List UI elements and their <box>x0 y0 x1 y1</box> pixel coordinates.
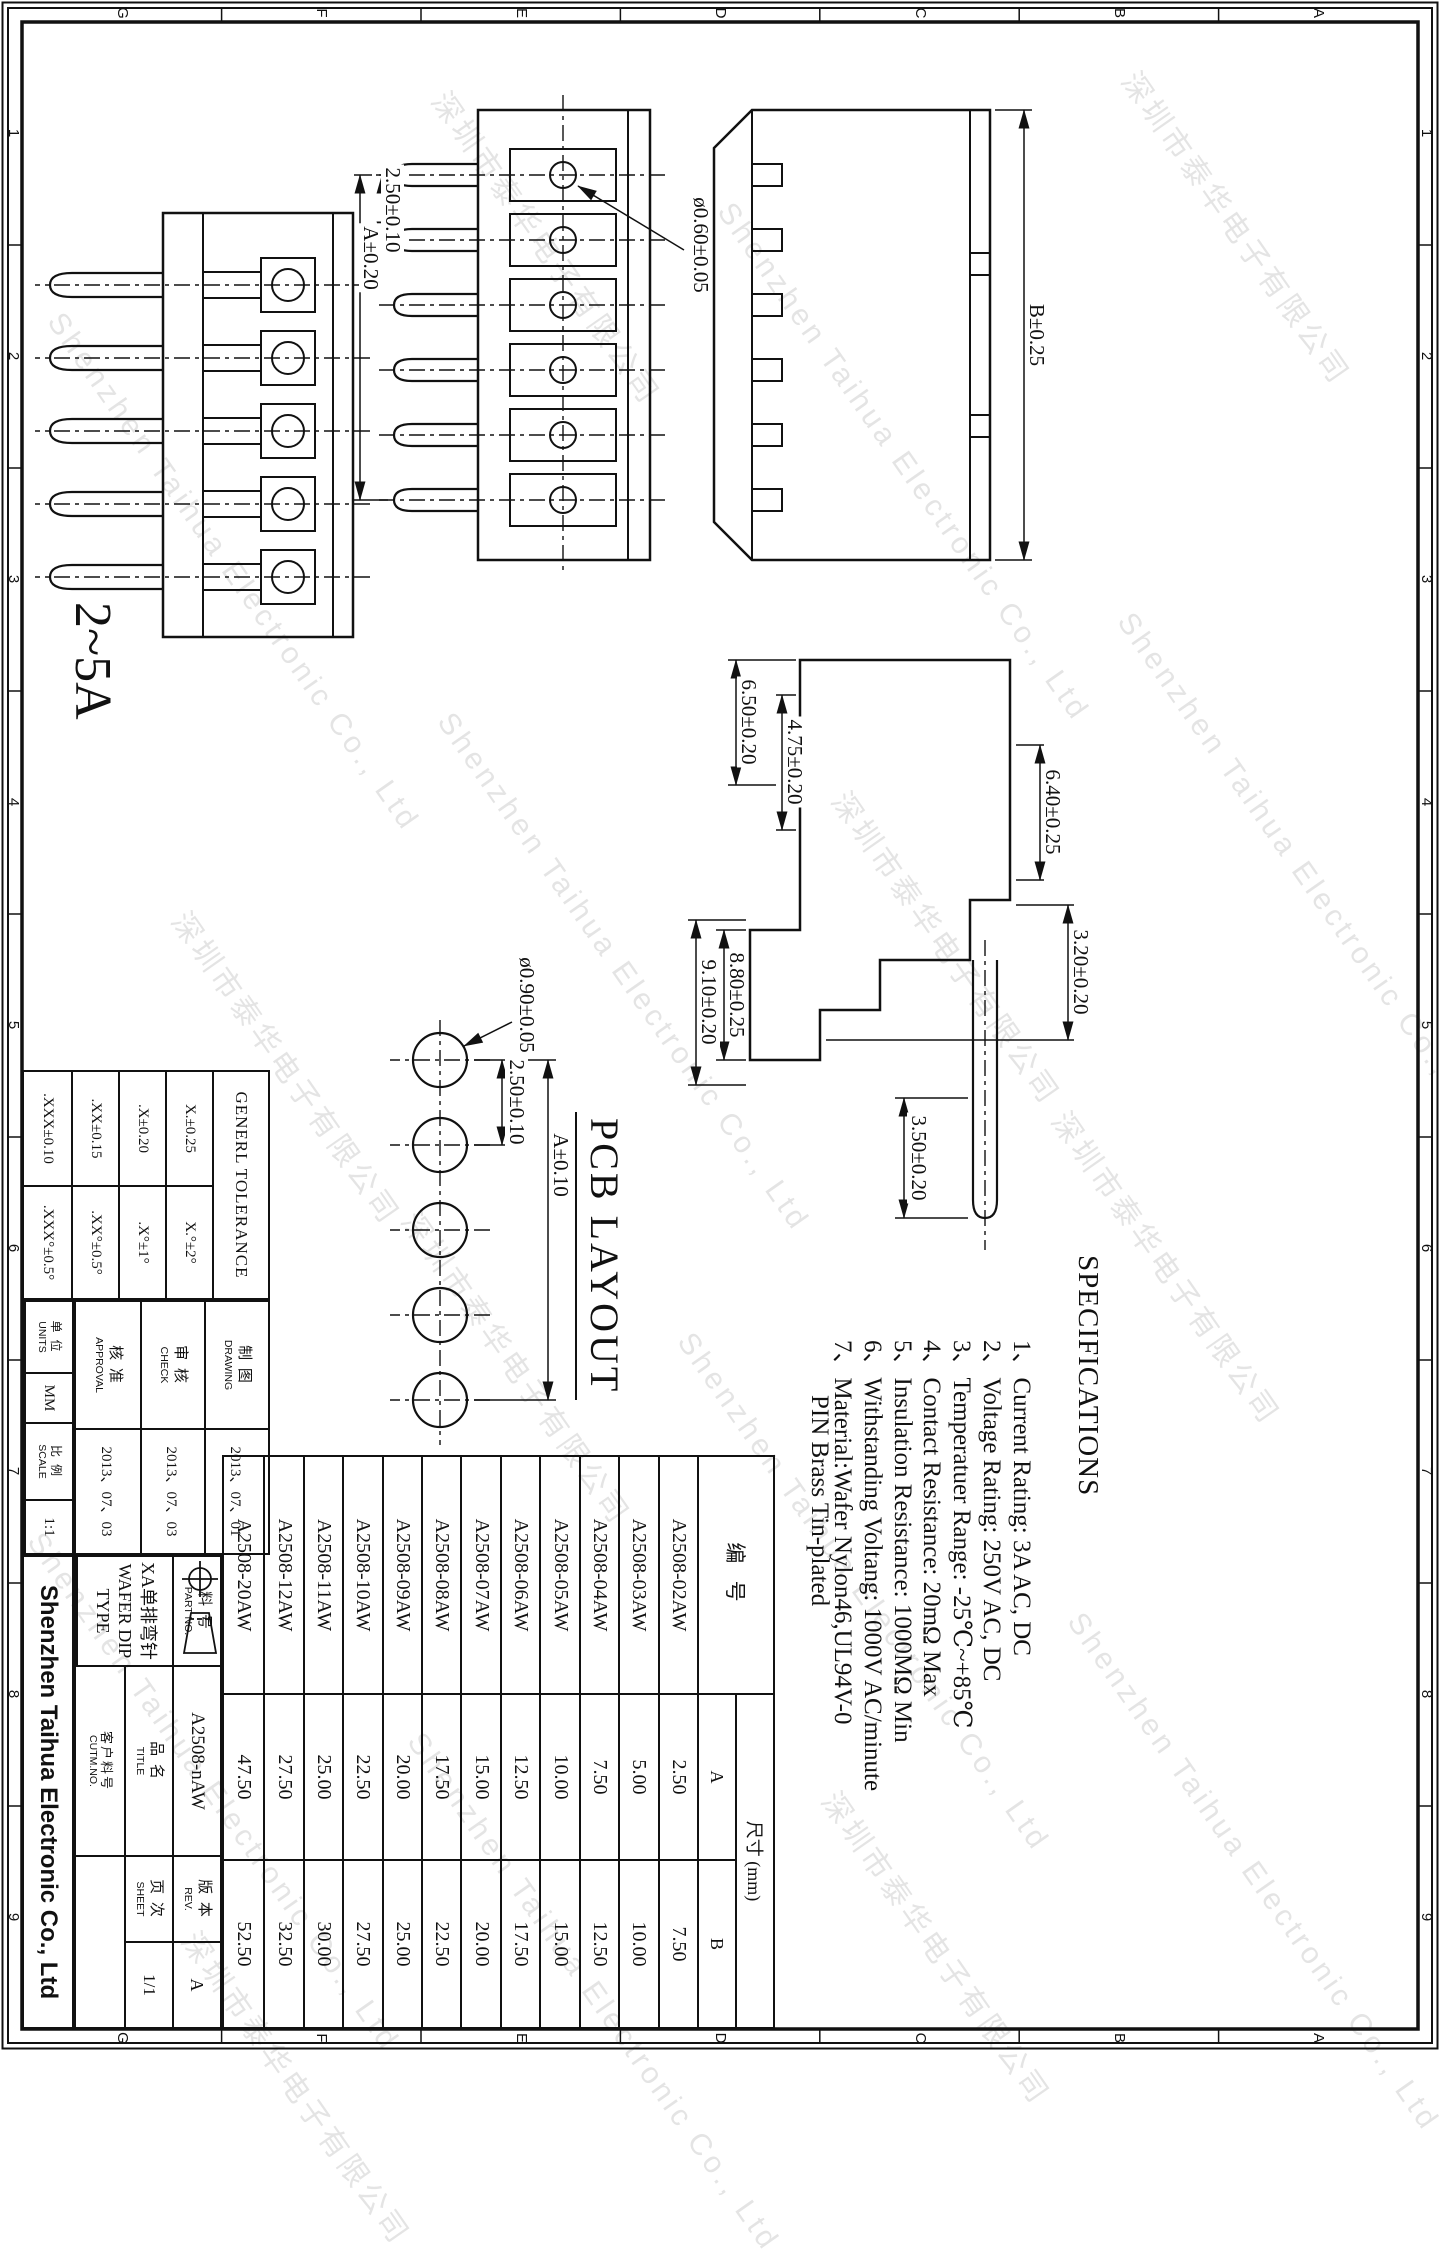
table-cell-part: A2508-03AW <box>618 1457 657 1695</box>
table-cell-a: 5.00 <box>618 1695 657 1861</box>
zone-number: 2 <box>5 347 21 365</box>
dim-label-profile-475: 4.75±0.20 <box>783 716 806 807</box>
table-cell-part: A2508-09AW <box>382 1457 421 1695</box>
table-cell-part: A2508-10AW <box>342 1457 381 1695</box>
zone-number: 8 <box>1418 1685 1434 1703</box>
rev-value: A <box>172 1943 220 2027</box>
dim-label-hole-diameter: ø0.90±0.05 <box>515 954 538 1056</box>
table-cell-b: 17.50 <box>500 1861 539 2027</box>
table-cell-a: 27.50 <box>263 1695 302 1861</box>
table-cell-part: A2508-06AW <box>500 1457 539 1695</box>
tolerance-linear: .XXX±0.10 <box>24 1072 71 1187</box>
zone-number: 6 <box>1418 1239 1434 1257</box>
tolerance-angular: .XX°±0.5° <box>71 1187 118 1298</box>
table-cell-b: 12.50 <box>579 1861 618 2027</box>
zone-letter: F <box>313 2029 329 2047</box>
table-cell-b: 10.00 <box>618 1861 657 2027</box>
title-value-cn: XA单排弯针 <box>136 1562 159 1660</box>
table-cell-part: A2508-05AW <box>539 1457 578 1695</box>
zone-letter: E <box>513 2029 529 2047</box>
parts-table-header-a: A <box>697 1695 735 1861</box>
parts-table-header-b: B <box>697 1861 735 2027</box>
pcb-layout-view <box>390 1020 556 1445</box>
zone-number: 9 <box>1418 1908 1434 1926</box>
customer-no-label-cn: 客户料号 <box>99 1731 114 1791</box>
rev-label-en: REV. <box>182 1887 194 1911</box>
zone-letter: G <box>114 2029 130 2047</box>
approval-label-en: DRAWING <box>222 1340 234 1390</box>
zone-letter: D <box>712 4 728 22</box>
zone-number: 8 <box>5 1685 21 1703</box>
approval-label-approval: 核 准 APPROVAL <box>76 1302 140 1430</box>
tolerance-title: GENERL TOLERANCE <box>212 1072 268 1298</box>
customer-no-label: 客户料号 CUTM.NO. <box>76 1667 124 1857</box>
approval-label-en: CHECK <box>158 1347 170 1384</box>
approval-label-cn: 审 核 <box>170 1345 187 1385</box>
zone-number: 3 <box>5 570 21 588</box>
table-cell-a: 10.00 <box>539 1695 578 1861</box>
zone-letter: G <box>114 4 130 22</box>
table-cell-a: 47.50 <box>224 1695 263 1861</box>
zone-number: 3 <box>1418 570 1434 588</box>
tolerance-linear: .XX±0.15 <box>71 1072 118 1187</box>
part-no-value: A2508-nAW <box>172 1667 220 1857</box>
table-cell-a: 12.50 <box>500 1695 539 1861</box>
zone-letter: A <box>1310 2029 1326 2047</box>
sheet-value: 1/1 <box>124 1943 172 2027</box>
zone-number: 4 <box>1418 793 1434 811</box>
front-view-5pin <box>35 213 370 637</box>
table-cell-b: 7.50 <box>658 1861 697 2027</box>
customer-no-label-en: CUTM.NO. <box>87 1735 99 1787</box>
parts-table-header-part: 编 号 <box>697 1457 773 1695</box>
zone-number: 1 <box>1418 124 1434 142</box>
zone-number: 7 <box>5 1462 21 1480</box>
table-cell-part: A2508-04AW <box>579 1457 618 1695</box>
approval-label-cn: 制 图 <box>234 1345 251 1385</box>
projection-symbol-icon <box>76 1857 124 2027</box>
units-value: MM <box>24 1374 72 1424</box>
parts-table: 编 号 尺寸 (mm) A B A2508-02AW2.507.50 A2508… <box>222 1455 775 2029</box>
dim-label-b-overall: B±0.25 <box>1025 301 1048 369</box>
zone-number: 6 <box>5 1239 21 1257</box>
sheet-label: 页 次 SHEET <box>124 1857 172 1943</box>
approval-date: 2013、07、03 <box>140 1430 204 1553</box>
table-cell-b: 20.00 <box>461 1861 500 2027</box>
zone-letter: A <box>1310 4 1326 22</box>
tolerance-angular: .X°±1° <box>118 1187 165 1298</box>
table-cell-part: A2508-08AW <box>421 1457 460 1695</box>
table-cell-part: A2508-11AW <box>303 1457 342 1695</box>
dim-label-pin-length: 3.50±0.20 <box>907 1112 930 1203</box>
zone-number: 7 <box>1418 1462 1434 1480</box>
specifications-title: SPECIFICATIONS <box>1071 1255 1104 1496</box>
tolerance-angular: X.°±2° <box>165 1187 212 1298</box>
approval-date: 2013、07、01 <box>204 1430 268 1553</box>
title-value: XA单排弯针 WAFER DIP TYPE <box>76 1557 172 1667</box>
approval-date: 2013、07、03 <box>76 1430 140 1553</box>
title-value-en: WAFER DIP TYPE <box>91 1557 136 1665</box>
zone-letter: B <box>1111 4 1127 22</box>
scale-value: 1:1 <box>24 1501 72 1553</box>
zone-number: 5 <box>1418 1016 1434 1034</box>
zone-letter: E <box>513 4 529 22</box>
units-label-en: UNITS <box>36 1321 48 1353</box>
title-label-cn: 品 名 <box>146 1741 163 1781</box>
tolerance-table: GENERL TOLERANCE X.±0.25 X.°±2° .X±0.20 … <box>22 1070 270 1300</box>
table-cell-b: 25.00 <box>382 1861 421 2027</box>
zone-letter: D <box>712 2029 728 2047</box>
approval-label-check: 审 核 CHECK <box>140 1302 204 1430</box>
title-label-en: TITLE <box>134 1747 146 1776</box>
table-cell-b: 30.00 <box>303 1861 342 2027</box>
zone-number: 5 <box>5 1016 21 1034</box>
zone-letter: C <box>912 2029 928 2047</box>
scale-label-en: SCALE <box>36 1444 48 1478</box>
company-name: Shenzhen Taihua Electronic Co., Ltd <box>22 1555 74 2029</box>
company-name-text: Shenzhen Taihua Electronic Co., Ltd <box>34 1585 62 1999</box>
dim-label-profile-640: 6.40±0.25 <box>1041 766 1064 857</box>
approval-label-en: APPROVAL <box>93 1337 105 1393</box>
sheet-label-cn: 页 次 <box>146 1879 163 1919</box>
pcb-layout-caption: PCB LAYOUT <box>575 1112 628 1400</box>
units-label-cn: 单 位 <box>48 1320 62 1353</box>
table-cell-a: 20.00 <box>382 1695 421 1861</box>
title-label: 品 名 TITLE <box>124 1667 172 1857</box>
scale-label-cn: 比 例 <box>48 1445 62 1478</box>
zone-number: 1 <box>5 124 21 142</box>
table-cell-b: 22.50 <box>421 1861 460 2027</box>
title-block: 料 号 PART NO. A2508-nAW 版 本 REV. A 品 名 TI… <box>74 1555 222 2029</box>
rear-view <box>714 110 1032 560</box>
sheet-label-en: SHEET <box>134 1881 146 1916</box>
zone-letter: F <box>313 4 329 22</box>
dim-label-profile-320: 3.20±0.20 <box>1069 926 1092 1017</box>
rating-label: 2~5A <box>63 602 122 720</box>
dim-label-pcb-pitch: 2.50±0.10 <box>505 1056 528 1147</box>
tolerance-linear: X.±0.25 <box>165 1072 212 1187</box>
table-cell-a: 22.50 <box>342 1695 381 1861</box>
table-cell-b: 15.00 <box>539 1861 578 2027</box>
rev-label: 版 本 REV. <box>172 1857 220 1943</box>
dim-label-pcb-span: A±0.10 <box>549 1130 572 1199</box>
drawing-sheet: 深圳市泰华电子有限公司 Shenzhen Taihua Electronic C… <box>0 0 1440 2051</box>
table-cell-a: 7.50 <box>579 1695 618 1861</box>
table-cell-a: 17.50 <box>421 1695 460 1861</box>
spec-item: PIN Brass Tin-plated <box>805 1395 833 1606</box>
table-cell-a: 15.00 <box>461 1695 500 1861</box>
dim-label-pin-pitch: 2.50±0.10 <box>381 164 404 255</box>
table-cell-part: A2508-02AW <box>658 1457 697 1695</box>
approval-label-cn: 核 准 <box>105 1345 122 1385</box>
table-cell-a: 2.50 <box>658 1695 697 1861</box>
table-cell-part: A2508-07AW <box>461 1457 500 1695</box>
units-scale-row: 单 位 UNITS MM 比 例 SCALE 1:1 <box>22 1300 74 1555</box>
zone-number: 4 <box>5 793 21 811</box>
zone-number: 2 <box>1418 347 1434 365</box>
approval-label-drawing: 制 图 DRAWING <box>204 1302 268 1430</box>
table-cell-b: 32.50 <box>263 1861 302 2027</box>
units-label: 单 位 UNITS <box>24 1302 72 1374</box>
dim-label-profile-650: 6.50±0.20 <box>737 676 760 767</box>
tolerance-angular: .XXX°±0.5° <box>24 1187 71 1298</box>
tolerance-linear: .X±0.20 <box>118 1072 165 1187</box>
approval-block: 制 图 DRAWING 2013、07、01 审 核 CHECK 2013、07… <box>74 1300 270 1555</box>
rev-label-cn: 版 本 <box>194 1879 211 1919</box>
table-cell-b: 52.50 <box>224 1861 263 2027</box>
table-cell-b: 27.50 <box>342 1861 381 2027</box>
dim-label-a-span: A±0.20 <box>359 223 382 292</box>
parts-table-header-size: 尺寸 (mm) <box>735 1695 773 2027</box>
dim-label-pin-diameter: ø0.60±0.05 <box>689 194 712 296</box>
table-cell-a: 25.00 <box>303 1695 342 1861</box>
zone-letter: B <box>1111 2029 1127 2047</box>
scale-label: 比 例 SCALE <box>24 1424 72 1501</box>
dim-label-profile-880: 8.80±0.25 <box>725 949 748 1040</box>
zone-number: 9 <box>5 1908 21 1926</box>
dim-label-profile-910: 9.10±0.20 <box>697 956 720 1047</box>
zone-letter: C <box>912 4 928 22</box>
